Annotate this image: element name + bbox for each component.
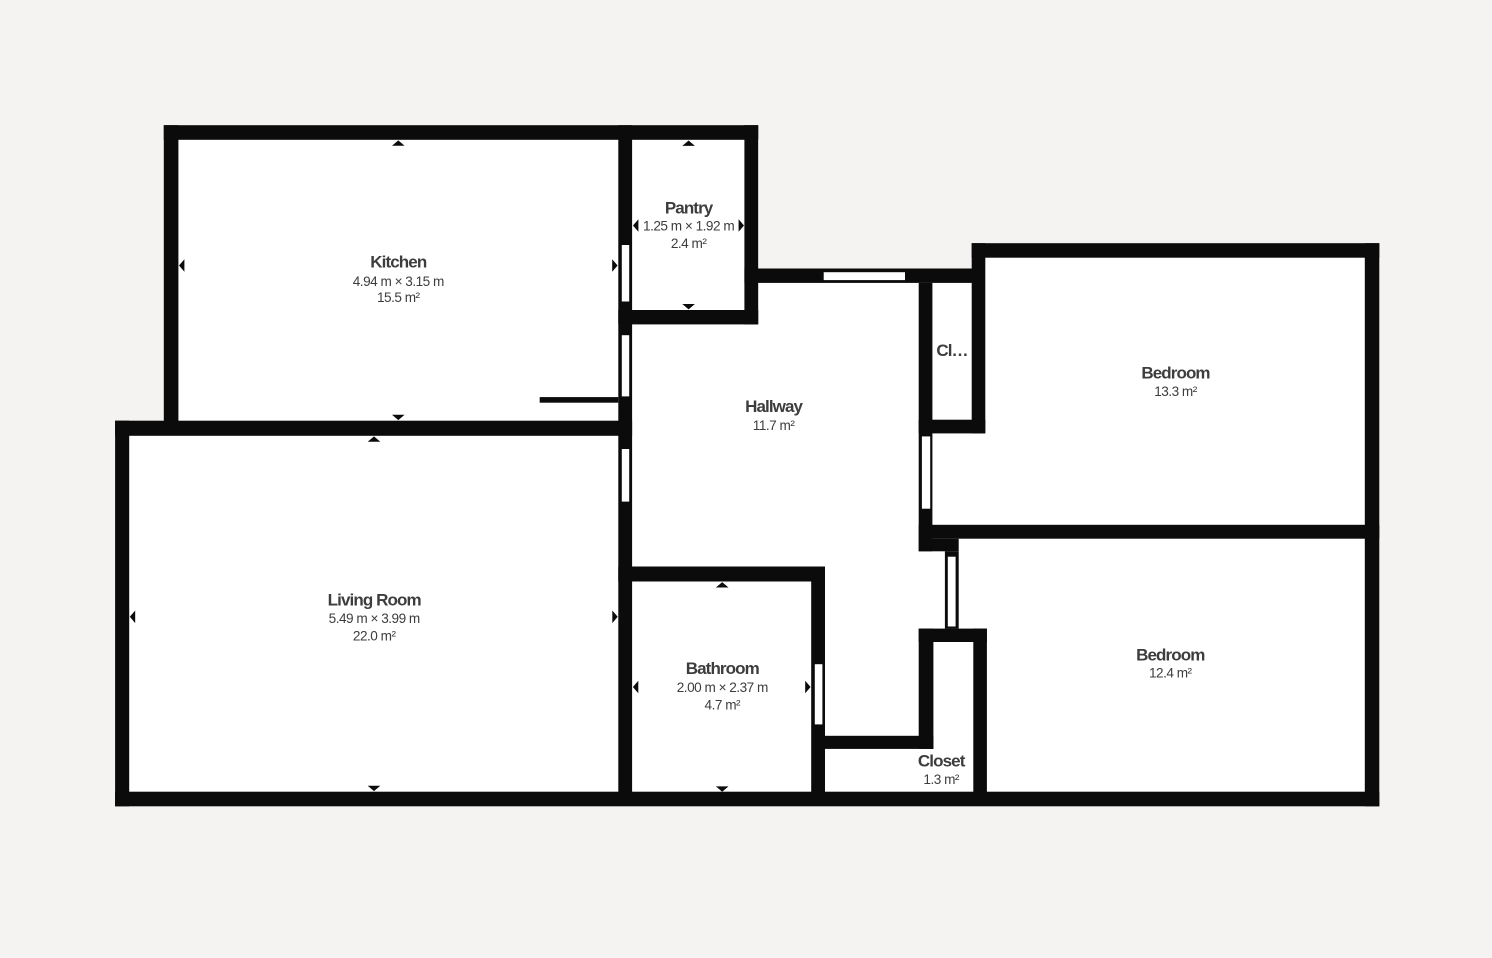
svg-text:4.7 m²: 4.7 m² (705, 698, 741, 713)
svg-text:Hallway: Hallway (745, 397, 803, 416)
svg-text:22.0 m²: 22.0 m² (353, 628, 397, 643)
svg-text:Living Room: Living Room (328, 591, 422, 610)
svg-text:Bedroom: Bedroom (1141, 363, 1210, 382)
svg-text:Pantry: Pantry (665, 199, 714, 218)
svg-text:Closet: Closet (918, 752, 966, 771)
svg-text:Bedroom: Bedroom (1136, 645, 1205, 664)
svg-text:1.25 m × 1.92 m: 1.25 m × 1.92 m (643, 219, 734, 234)
svg-text:12.4 m²: 12.4 m² (1149, 666, 1193, 681)
svg-text:4.94 m × 3.15 m: 4.94 m × 3.15 m (353, 274, 444, 289)
svg-text:5.49 m × 3.99 m: 5.49 m × 3.99 m (329, 611, 420, 626)
svg-text:1.3 m²: 1.3 m² (923, 772, 959, 787)
svg-text:2.4 m²: 2.4 m² (671, 236, 707, 251)
svg-text:Bathroom: Bathroom (686, 659, 760, 678)
svg-text:Cl…: Cl… (936, 341, 967, 360)
svg-text:Kitchen: Kitchen (370, 252, 427, 271)
svg-text:2.00 m × 2.37 m: 2.00 m × 2.37 m (677, 680, 768, 695)
svg-text:13.3 m²: 13.3 m² (1154, 384, 1198, 399)
svg-text:15.5 m²: 15.5 m² (377, 290, 421, 305)
svg-text:11.7 m²: 11.7 m² (753, 418, 796, 433)
